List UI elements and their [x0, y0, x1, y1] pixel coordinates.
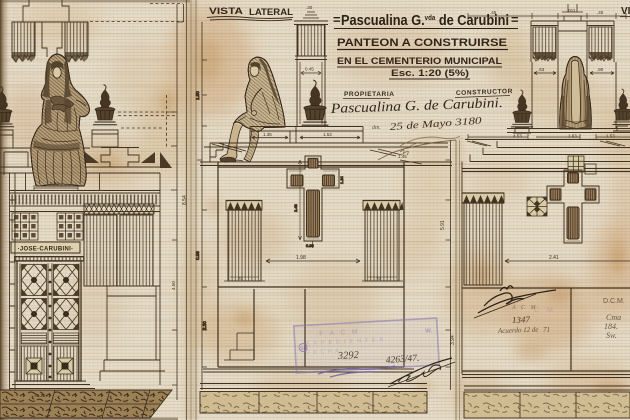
svg-text:3.94: 3.94	[450, 335, 456, 345]
svg-text:PANTEON A CONSTRUIRSE: PANTEON A CONSTRUIRSE	[337, 37, 507, 49]
svg-text:D.C.M.: D.C.M.	[603, 298, 625, 305]
svg-text:EN EL CEMENTERIO MUNICIPAL: EN EL CEMENTERIO MUNICIPAL	[337, 56, 502, 67]
svg-text:0.92: 0.92	[50, 181, 59, 186]
svg-text:0.30: 0.30	[306, 243, 315, 248]
svg-text:1.63: 1.63	[568, 134, 577, 139]
svg-text:o r: o r	[528, 318, 540, 324]
svg-text:.75: .75	[375, 276, 381, 281]
svg-text:71: 71	[543, 326, 550, 334]
svg-text:VISTA: VISTA	[209, 6, 243, 17]
svg-text:.40: .40	[597, 10, 604, 15]
svg-text:1.35: 1.35	[263, 132, 272, 137]
svg-text:4.50: 4.50	[171, 281, 176, 290]
svg-text:=: =	[511, 12, 519, 27]
svg-text:2.30: 2.30	[202, 321, 207, 330]
svg-text:Sw.: Sw.	[606, 331, 617, 340]
svg-text:Acuerdo 12 de: Acuerdo 12 de	[497, 326, 539, 335]
svg-text:.53: .53	[538, 67, 545, 72]
svg-text:1.98: 1.98	[296, 255, 306, 261]
svg-text:SB: SB	[300, 346, 308, 352]
svg-text:=1.22=: =1.22=	[34, 393, 48, 398]
svg-text:4.53: 4.53	[513, 134, 522, 139]
svg-text:.90: .90	[597, 67, 604, 72]
svg-text:2.41: 2.41	[549, 255, 559, 261]
svg-text:8.54: 8.54	[182, 195, 188, 205]
svg-text:dm.: dm.	[372, 125, 381, 131]
svg-text:1.24: 1.24	[339, 175, 344, 184]
svg-text:PROPIETARIA: PROPIETARIA	[344, 91, 395, 98]
svg-text:LATERAL: LATERAL	[249, 7, 293, 18]
svg-text:184.: 184.	[604, 322, 618, 331]
svg-text:C M: C M	[534, 307, 556, 314]
svg-text:3292: 3292	[337, 350, 360, 362]
svg-text:VI: VI	[621, 6, 630, 17]
svg-text:Cma: Cma	[606, 313, 621, 322]
svg-text:2.48: 2.48	[293, 203, 298, 212]
svg-text:5.91: 5.91	[440, 220, 446, 230]
svg-text:1.50: 1.50	[195, 91, 200, 100]
svg-text:W.: W.	[425, 328, 433, 334]
svg-text:1.53: 1.53	[323, 132, 332, 137]
svg-text:.75: .75	[237, 276, 243, 281]
svg-text:.30: .30	[306, 5, 313, 10]
svg-text:0.98: 0.98	[195, 251, 200, 260]
svg-text:0.45: 0.45	[305, 67, 314, 72]
svg-text:1.53: 1.53	[606, 134, 615, 139]
svg-text:·JOSE·CARUBINI·: ·JOSE·CARUBINI·	[18, 247, 74, 253]
svg-text:Esc. 1:20 (5%): Esc. 1:20 (5%)	[391, 68, 469, 78]
svg-text:=: =	[333, 12, 341, 27]
